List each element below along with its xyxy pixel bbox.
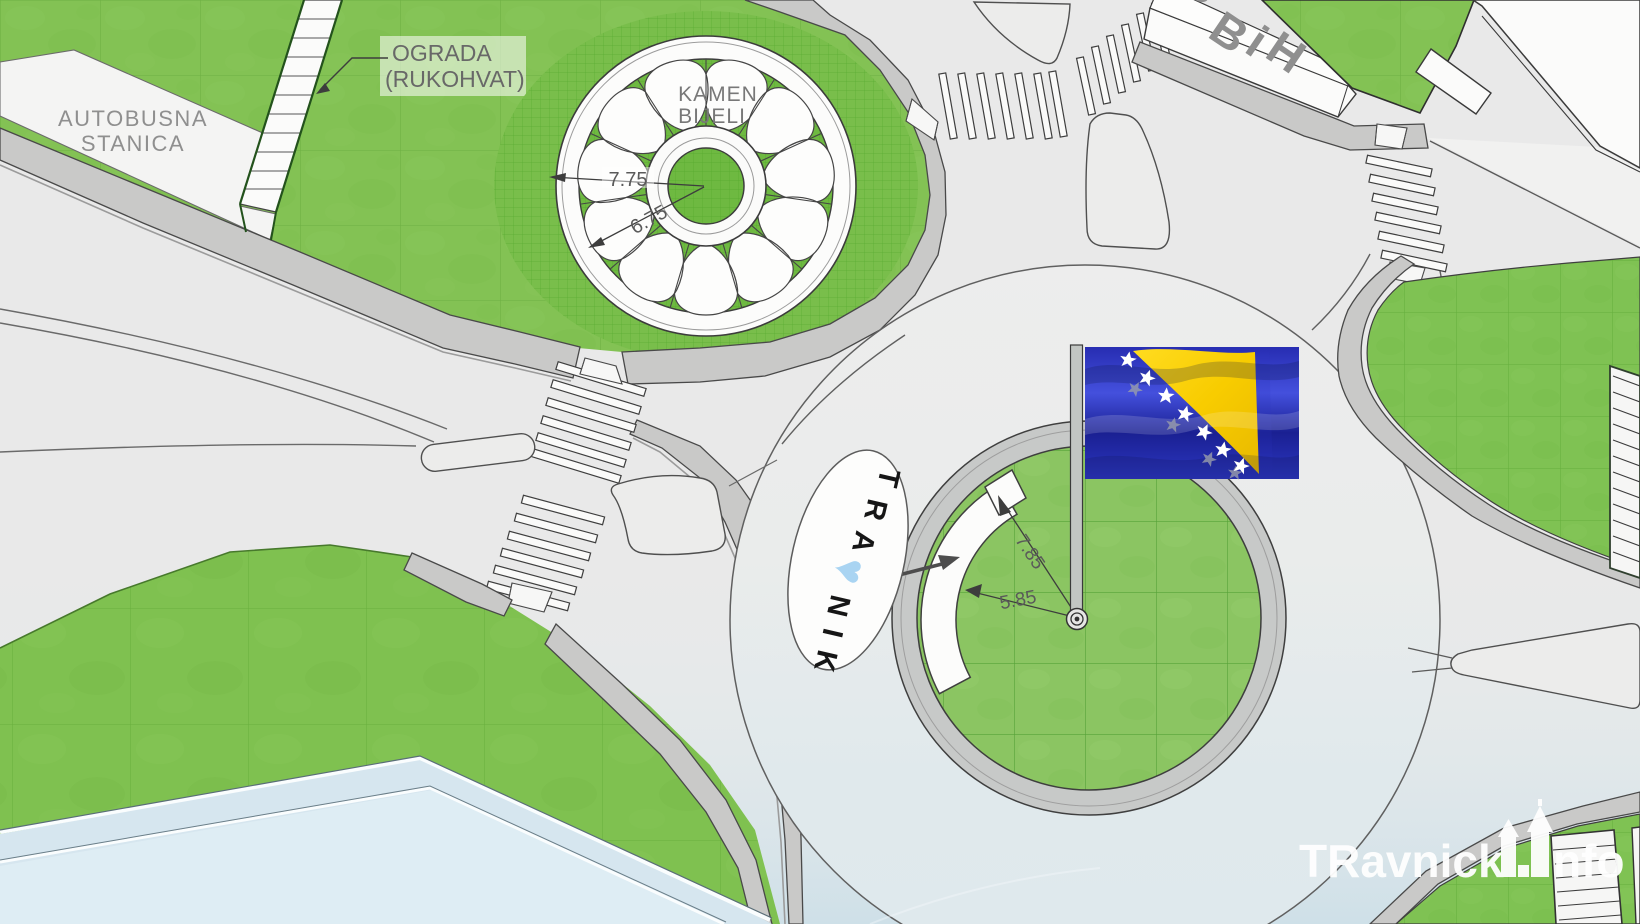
svg-text:TRavnick: TRavnick — [1299, 835, 1504, 887]
svg-text:nfo: nfo — [1553, 835, 1625, 887]
svg-text:AUTOBUSNA: AUTOBUSNA — [58, 106, 208, 131]
svg-text:BIJELI: BIJELI — [678, 105, 746, 128]
svg-text:(RUKOHVAT): (RUKOHVAT) — [385, 66, 525, 92]
svg-text:STANICA: STANICA — [81, 131, 185, 156]
svg-text:7.75: 7.75 — [609, 169, 648, 191]
svg-text:OGRADA: OGRADA — [392, 40, 492, 66]
svg-text:KAMEN: KAMEN — [678, 83, 758, 106]
